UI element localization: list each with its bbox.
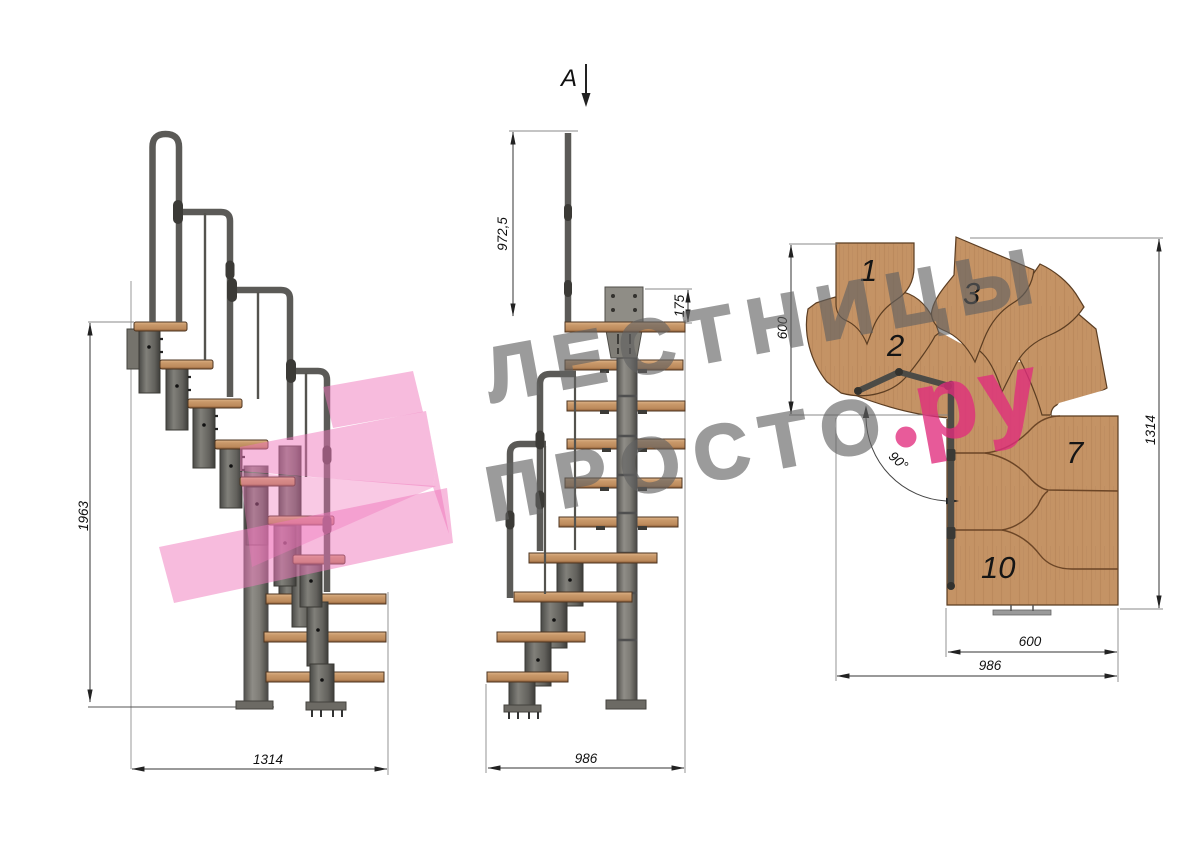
svg-text:A: A [559,65,577,92]
svg-text:1963: 1963 [76,500,91,531]
svg-text:10: 10 [981,550,1015,585]
svg-text:986: 986 [979,658,1002,673]
svg-text:7: 7 [1066,435,1085,470]
svg-text:986: 986 [575,751,598,766]
svg-text:972,5: 972,5 [495,217,510,251]
svg-text:1314: 1314 [253,752,283,767]
svg-text:ру: ру [905,329,1053,465]
svg-text:600: 600 [1019,634,1042,649]
svg-text:1314: 1314 [1143,415,1158,445]
